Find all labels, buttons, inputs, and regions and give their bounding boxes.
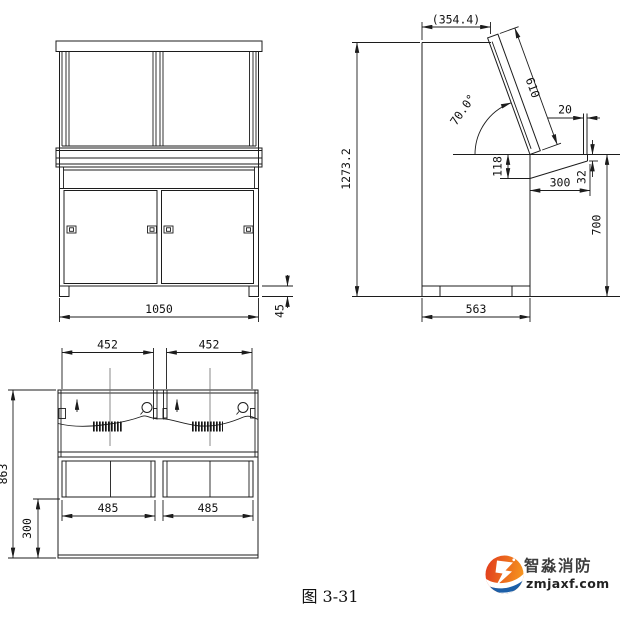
door-handle — [164, 226, 173, 233]
knob-circle-left — [142, 403, 152, 413]
dim-ledge-edge: 32 — [575, 140, 599, 184]
dim-label-32: 32 — [575, 170, 589, 184]
foot-front-left — [60, 286, 70, 297]
foot-side-right — [512, 286, 530, 297]
glass-sliding-doors — [62, 52, 256, 146]
figure-caption: 图 3-31 — [301, 587, 358, 606]
dim-label-563: 563 — [466, 302, 487, 316]
dim-label-20: 20 — [558, 103, 572, 117]
dim-foot-height: 45 — [262, 275, 293, 318]
logo-site: zmjaxf.com — [526, 576, 610, 591]
logo: 智淼消防 zmjaxf.com — [484, 556, 610, 596]
door-handle — [67, 226, 76, 233]
dim-opening-right: 485 — [163, 500, 253, 521]
dim-label-45: 45 — [273, 304, 287, 318]
angle-arc — [475, 103, 511, 155]
door-handle — [244, 226, 253, 233]
logo-icon — [484, 556, 525, 596]
hinge-bracket — [59, 409, 66, 419]
dim-door-span-left: 452 — [62, 338, 154, 390]
dim-opening-left: 485 — [62, 500, 155, 521]
break-line — [58, 416, 258, 426]
dim-label-700: 700 — [590, 215, 604, 236]
opening-left — [62, 461, 155, 497]
cabinet-door-right — [162, 191, 254, 284]
foot-front-right — [249, 286, 259, 297]
hinge-bracket — [154, 409, 158, 419]
dim-body-depth: 563 — [422, 298, 530, 322]
foot-side-left — [422, 286, 440, 297]
technical-drawing-sheet: 1050 45 — [0, 0, 620, 617]
dim-label-452-left: 452 — [97, 338, 118, 352]
cabinet-door-left — [64, 191, 157, 284]
dim-board-thickness: 20 — [548, 103, 600, 119]
dim-overall-height: 1273.2 — [339, 43, 420, 297]
dim-door-span-right: 452 — [167, 338, 253, 390]
door-handles — [67, 226, 253, 233]
dim-label-300-side: 300 — [550, 176, 571, 190]
dim-label-863: 863 — [0, 464, 10, 485]
dim-label-1273: 1273.2 — [339, 148, 353, 190]
front-board — [584, 114, 588, 155]
dim-top-depth: (354.4) — [422, 13, 491, 41]
dim-label-angle: 70.0° — [447, 92, 478, 128]
dim-front-drop: 118 — [491, 155, 509, 179]
dim-label-300-plan: 300 — [20, 518, 34, 539]
front-view: 1050 45 — [56, 41, 293, 322]
dim-rear-depth: 300 — [20, 499, 60, 558]
door-handle — [148, 226, 157, 233]
vent-grille-right — [192, 422, 223, 432]
dim-label-485-right: 485 — [198, 501, 219, 515]
logo-name: 智淼消防 — [524, 556, 592, 575]
knob-circle-right — [238, 403, 248, 413]
vent-grille-left — [92, 422, 123, 432]
dim-label-485-left: 485 — [98, 501, 119, 515]
dim-label-354: (354.4) — [432, 13, 480, 27]
side-view: 70.0° (354.4) 610 20 118 — [339, 13, 620, 323]
dim-front-width: 1050 — [60, 298, 259, 322]
dim-label-452-right: 452 — [199, 338, 220, 352]
counter-band — [56, 148, 262, 167]
drawer-band — [60, 167, 259, 189]
dim-label-1050: 1050 — [145, 302, 173, 316]
plan-view: 452 452 863 300 485 — [0, 338, 258, 559]
opening-right — [163, 461, 253, 497]
top-cap — [56, 41, 262, 52]
dim-label-118: 118 — [491, 156, 505, 177]
